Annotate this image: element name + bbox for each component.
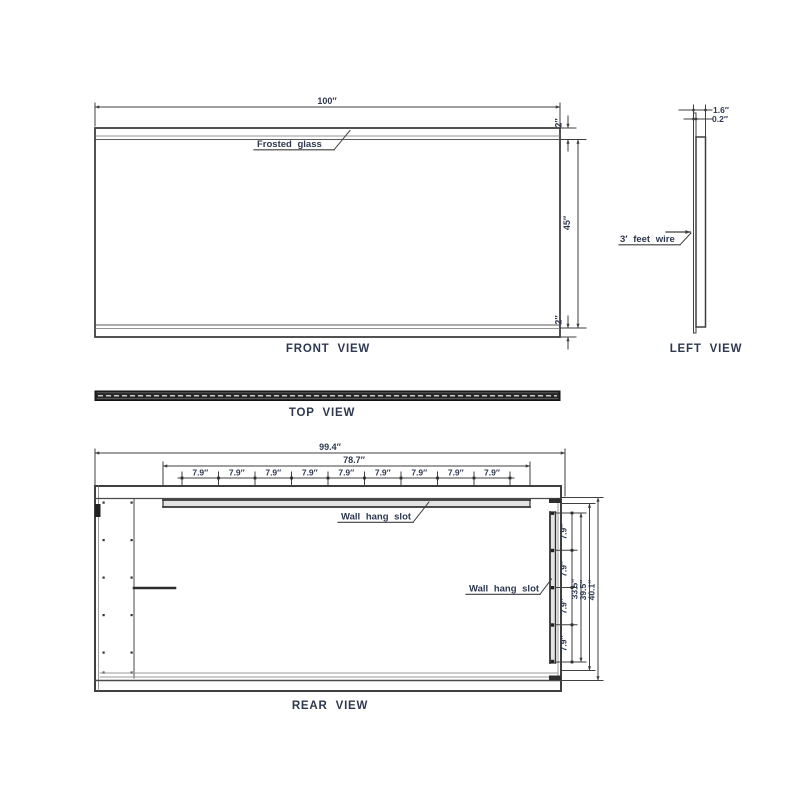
left-view: 1.6″ 0.2″ 3′ feet wire LEFT VIEW (619, 105, 742, 355)
top-spacing-label: 7.9″ (448, 468, 464, 478)
rear-right-dimensions: 7.9″ 7.9″ 7.9″ 7.9″ 33.5″ 39.5″ 40.1″ (556, 498, 603, 681)
top-view: TOP VIEW (95, 391, 560, 419)
rear-top-rail (163, 500, 530, 507)
side-spacing-label: 7.9″ (559, 561, 569, 577)
front-top-frame-label: 2″ (554, 118, 564, 128)
front-width-label: 100″ (317, 96, 337, 106)
rear-right-slot (550, 512, 556, 664)
front-panel-outline (95, 128, 560, 337)
rear-top-slot-label: Wall hang slot (341, 512, 412, 523)
front-height-label: 45″ (562, 215, 572, 230)
front-width-dimension: 100″ (95, 96, 560, 126)
rear-side-slot-label: Wall hang slot (469, 584, 540, 595)
feet-wire-label: 3′ feet wire (620, 234, 675, 245)
top-spacing-label: 7.9″ (192, 468, 208, 478)
top-spacing-label: 7.9″ (302, 468, 318, 478)
top-view-title: TOP VIEW (289, 407, 355, 419)
front-view-title: FRONT VIEW (286, 343, 370, 355)
technical-drawing-page: 100″ Frosted glass 2″ 45″ (0, 0, 800, 800)
side-spacing-label: 7.9″ (559, 598, 569, 614)
side-spacing-label: 7.9″ (559, 524, 569, 540)
rear-rail-width-label: 78.7″ (343, 455, 366, 465)
left-view-thickness-dimensions: 1.6″ 0.2″ (679, 105, 729, 136)
top-spacing-label: 7.9″ (411, 468, 427, 478)
frosted-glass-label: Frosted glass (257, 139, 322, 150)
rear-view-title: REAR VIEW (292, 700, 368, 712)
drawing-canvas: 100″ Frosted glass 2″ 45″ (0, 0, 800, 800)
side-spacing-label: 7.9″ (559, 635, 569, 651)
top-spacing-label: 7.9″ (338, 468, 354, 478)
front-view: 100″ Frosted glass 2″ 45″ (95, 96, 586, 355)
top-spacing-label: 7.9″ (484, 468, 500, 478)
left-thickness-glass-label: 0.2″ (712, 114, 728, 124)
rear-view: 99.4″ 78.7″ (95, 442, 603, 712)
rear-overall-height-label: 40.1″ (587, 580, 597, 601)
top-spacing-label: 7.9″ (229, 468, 245, 478)
front-bottom-frame-label: 2″ (554, 315, 564, 325)
rear-overall-width-label: 99.4″ (319, 442, 342, 452)
left-view-body (696, 137, 706, 327)
top-spacing-label: 7.9″ (265, 468, 281, 478)
left-view-title: LEFT VIEW (670, 343, 743, 355)
feet-wire-callout: 3′ feet wire (619, 232, 691, 245)
top-spacing-label: 7.9″ (375, 468, 391, 478)
